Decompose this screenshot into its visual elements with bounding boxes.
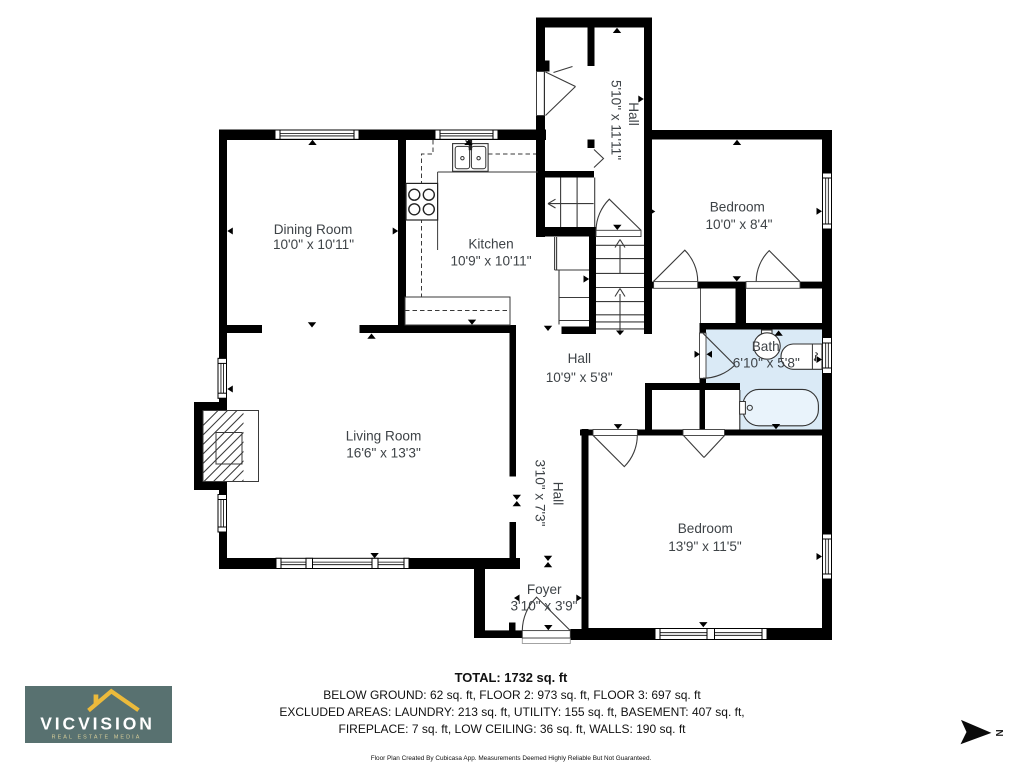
svg-text:TOTAL: 1732 sq. ft: TOTAL: 1732 sq. ft <box>455 670 568 685</box>
svg-text:FIREPLACE: 7 sq. ft, LOW CEILI: FIREPLACE: 7 sq. ft, LOW CEILING: 36 sq.… <box>338 722 686 736</box>
svg-text:10'0" x 10'11": 10'0" x 10'11" <box>273 237 354 252</box>
svg-text:16'6" x 13'3": 16'6" x 13'3" <box>346 445 421 460</box>
svg-text:Hall: Hall <box>568 351 591 366</box>
svg-text:Foyer: Foyer <box>527 582 562 597</box>
svg-text:Bath: Bath <box>752 339 780 354</box>
svg-text:Floor Plan Created By Cubicasa: Floor Plan Created By Cubicasa App. Meas… <box>371 755 652 762</box>
svg-text:Bedroom: Bedroom <box>678 521 733 536</box>
svg-text:Dining Room: Dining Room <box>274 222 353 237</box>
svg-text:BELOW GROUND: 62 sq. ft, FLOOR: BELOW GROUND: 62 sq. ft, FLOOR 2: 973 sq… <box>323 688 701 702</box>
svg-text:Hall: Hall <box>626 102 641 125</box>
svg-text:3'10" x 7'3": 3'10" x 7'3" <box>533 460 548 527</box>
svg-text:3'10" x 3'9": 3'10" x 3'9" <box>511 598 578 613</box>
svg-text:10'0" x 8'4": 10'0" x 8'4" <box>706 217 773 232</box>
svg-text:Living Room: Living Room <box>346 429 422 444</box>
svg-text:Kitchen: Kitchen <box>468 236 513 251</box>
svg-text:13'9" x 11'5": 13'9" x 11'5" <box>668 539 742 554</box>
svg-text:VICVISION: VICVISION <box>40 714 155 734</box>
svg-text:Hall: Hall <box>551 482 566 505</box>
svg-text:6'10" x 5'8": 6'10" x 5'8" <box>733 355 800 370</box>
svg-text:REAL ESTATE MEDIA: REAL ESTATE MEDIA <box>52 735 142 741</box>
svg-text:10'9" x 5'8": 10'9" x 5'8" <box>546 370 613 385</box>
svg-text:Bedroom: Bedroom <box>710 199 765 214</box>
svg-text:EXCLUDED AREAS: LAUNDRY: 213 s: EXCLUDED AREAS: LAUNDRY: 213 sq. ft, UTI… <box>279 705 744 719</box>
svg-text:10'9" x 10'11": 10'9" x 10'11" <box>450 254 531 269</box>
svg-text:5'10" x 11'11": 5'10" x 11'11" <box>609 80 624 160</box>
svg-text:N: N <box>993 729 1004 736</box>
